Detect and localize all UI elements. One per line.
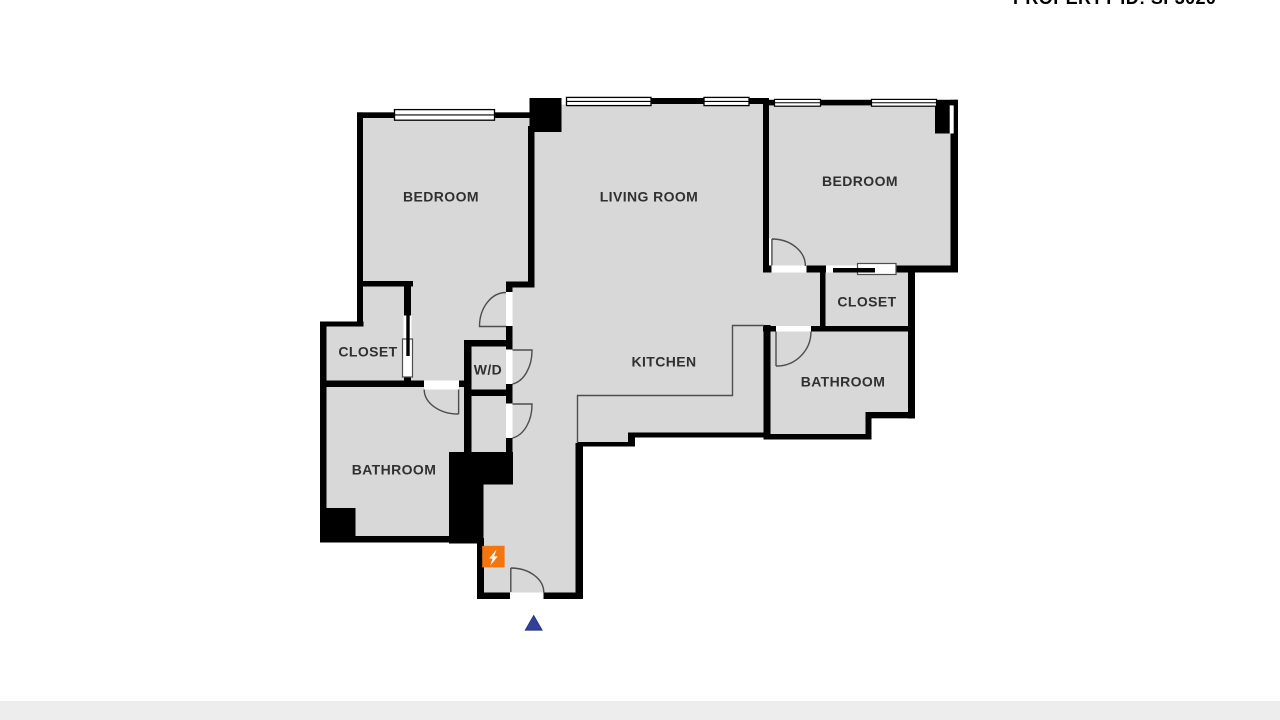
svg-text:BEDROOM: BEDROOM bbox=[403, 189, 479, 205]
svg-text:W/D: W/D bbox=[474, 362, 502, 378]
svg-text:CLOSET: CLOSET bbox=[837, 294, 896, 310]
svg-text:BATHROOM: BATHROOM bbox=[801, 374, 886, 390]
svg-text:KITCHEN: KITCHEN bbox=[631, 354, 696, 370]
svg-text:BEDROOM: BEDROOM bbox=[822, 173, 898, 189]
svg-text:LIVING ROOM: LIVING ROOM bbox=[600, 189, 699, 205]
svg-text:CLOSET: CLOSET bbox=[338, 344, 397, 360]
svg-text:BATHROOM: BATHROOM bbox=[352, 462, 437, 478]
